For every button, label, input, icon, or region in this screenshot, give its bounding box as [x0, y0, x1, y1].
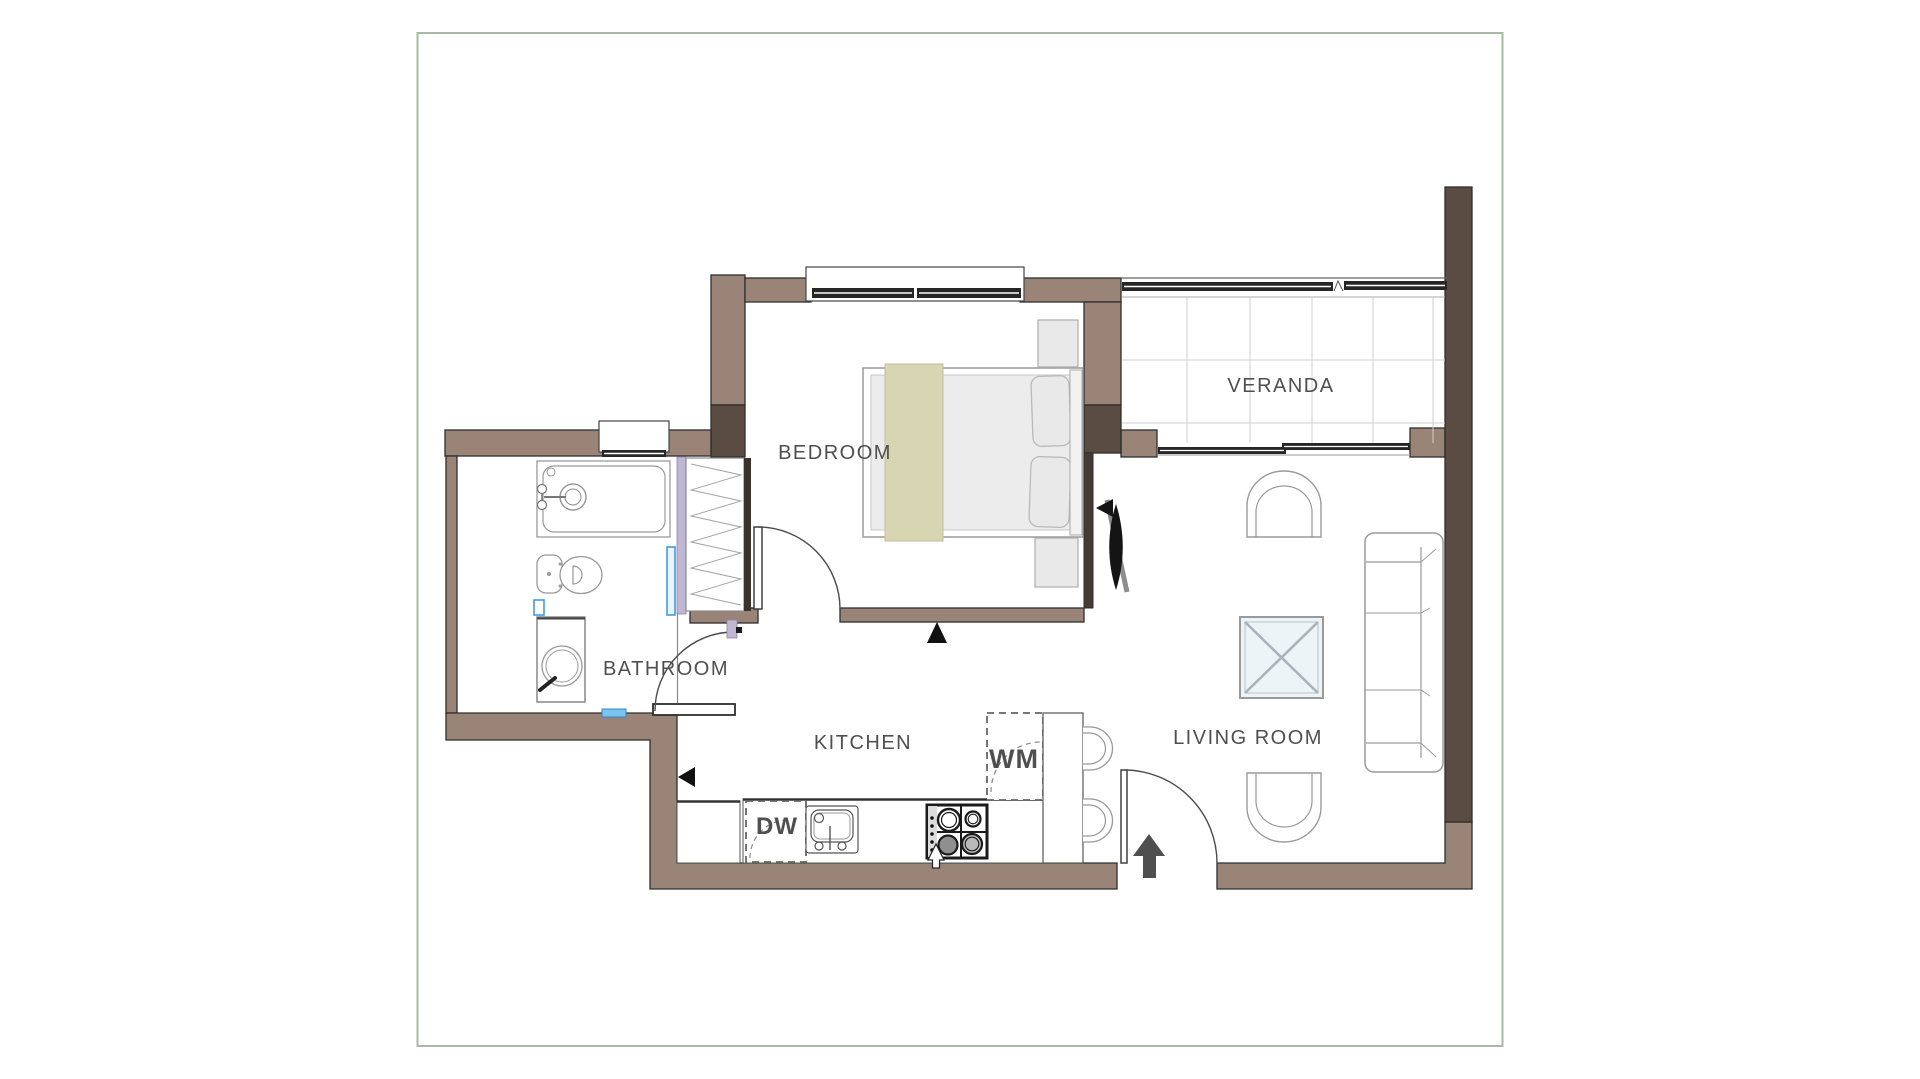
room-label-bathroom: BATHROOM [603, 658, 729, 680]
towel-bar [602, 709, 626, 717]
bedroom-top-wall-right [1020, 278, 1121, 302]
room-label-veranda: VERANDA [1227, 375, 1334, 397]
bedroom-window [806, 267, 1024, 301]
towel-rail [534, 600, 544, 615]
veranda-right-block [1410, 428, 1445, 457]
door-sill [653, 704, 735, 715]
veranda-left-block [1121, 430, 1157, 457]
wardrobe-side-wall [677, 457, 686, 614]
washing-machine-label: WM [989, 744, 1039, 774]
dishwasher-label: DW [756, 813, 798, 840]
bedroom-bottom-wall [840, 608, 1084, 622]
nightstand [1035, 538, 1078, 587]
towel-radiator [667, 547, 675, 615]
burner [939, 836, 958, 855]
dishwasher: DW [746, 801, 806, 862]
right-exterior-wall [1445, 187, 1472, 822]
bathroom-top-wall [445, 430, 711, 456]
tap-handle [538, 501, 547, 510]
coffee-table [1240, 617, 1323, 698]
dining-chair-top [1247, 471, 1321, 537]
toilet [537, 555, 602, 594]
room-label-living-room: LIVING ROOM [1173, 727, 1323, 749]
door-leaf [1121, 770, 1127, 863]
door-leaf [754, 527, 762, 609]
bed [863, 364, 1083, 541]
headboard [1070, 370, 1082, 535]
basin [542, 646, 582, 686]
bathroom-window [599, 421, 669, 457]
tap-handle [538, 485, 547, 494]
bathroom-left-wall [446, 456, 457, 713]
door-jamb [727, 620, 737, 638]
room-label-kitchen: KITCHEN [814, 732, 912, 754]
bedroom-top-wall-left [745, 278, 811, 302]
bedroom-west-wall-dark [711, 405, 745, 457]
room-label-bedroom: BEDROOM [778, 442, 892, 464]
bedroom-west-wall [711, 275, 745, 405]
page-background [0, 0, 1920, 1079]
washing-machine: WM [987, 713, 1043, 800]
floor-plan-page: DW WM [0, 0, 1920, 1079]
wardrobe-back-panel [744, 458, 751, 611]
kitchen-sink [806, 806, 858, 853]
washbasin-vanity [537, 617, 585, 702]
dining-chair-bottom [1247, 773, 1321, 842]
sofa [1365, 533, 1443, 772]
pillow [1029, 456, 1071, 527]
nightstand [1038, 320, 1078, 367]
floor-plan-drawing: DW WM [0, 0, 1920, 1079]
door-stop [736, 627, 742, 633]
pillow [1031, 375, 1071, 446]
breakfast-bar [1043, 713, 1083, 863]
bedroom-east-wall-dark [1084, 405, 1121, 453]
bedroom-east-wall [1084, 302, 1121, 405]
bathtub [537, 461, 670, 537]
bedroom-partition-wall [1084, 453, 1093, 608]
blanket [885, 364, 943, 541]
